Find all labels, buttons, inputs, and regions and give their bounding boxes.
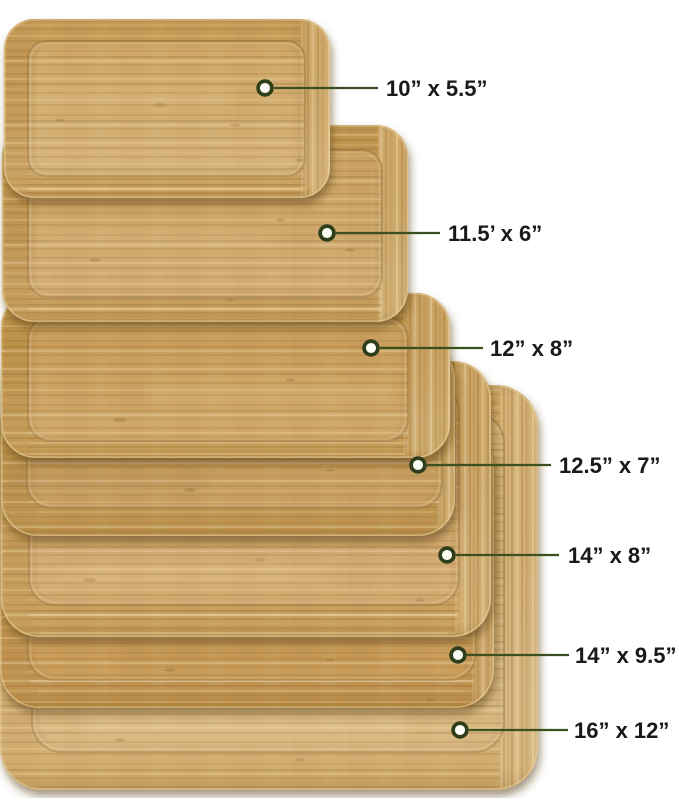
- svg-text:14” x 9.5”: 14” x 9.5”: [575, 643, 677, 668]
- svg-text:16” x 12”: 16” x 12”: [574, 718, 669, 743]
- svg-text:12” x 8”: 12” x 8”: [490, 336, 573, 361]
- svg-text:14” x 8”: 14” x 8”: [568, 543, 651, 568]
- svg-text:12.5” x 7”: 12.5” x 7”: [559, 453, 661, 478]
- svg-text:11.5’ x 6”: 11.5’ x 6”: [448, 221, 542, 246]
- svg-text:10” x 5.5”: 10” x 5.5”: [386, 76, 488, 101]
